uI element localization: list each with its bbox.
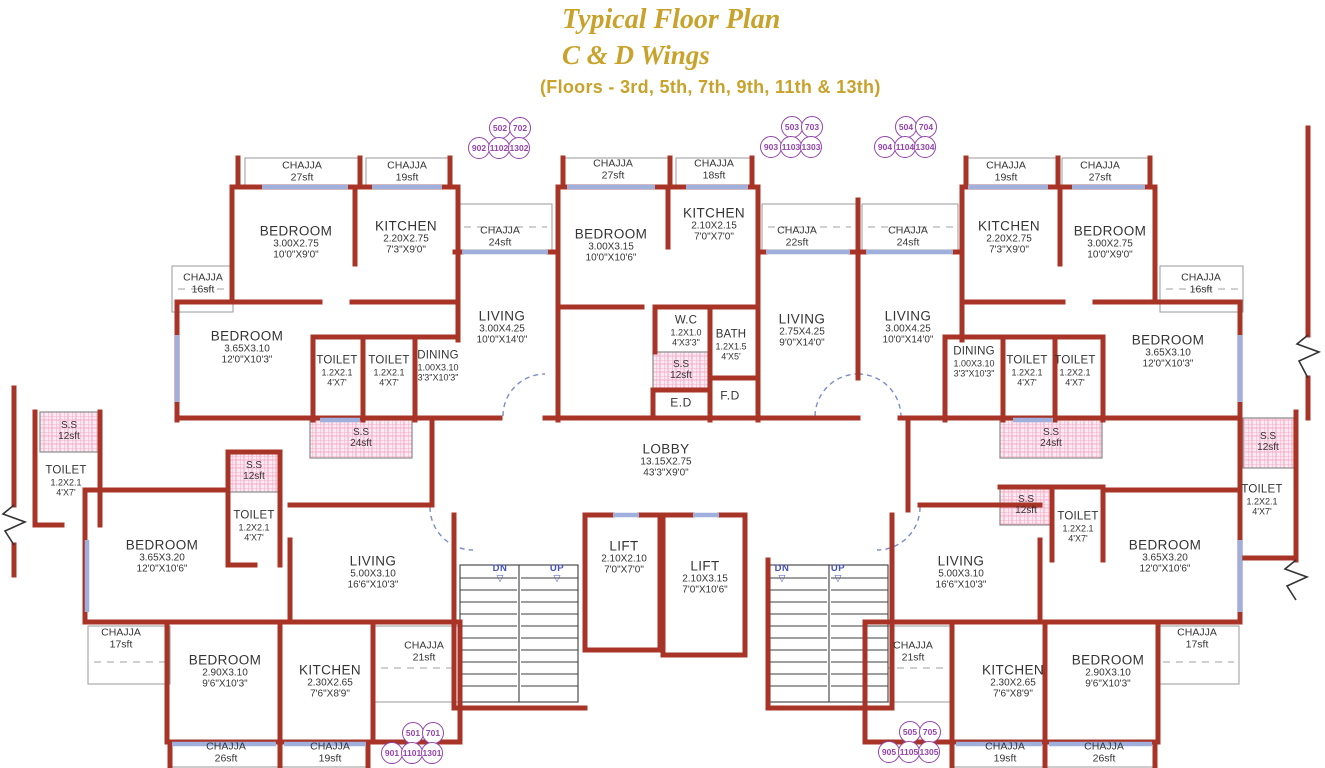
unit-number-cluster: 50470490411041304	[874, 117, 936, 157]
unit-number-circle: 704	[915, 116, 937, 138]
unit-number-row: 504704	[896, 117, 936, 137]
unit-number-circle: 902	[468, 137, 490, 159]
unit-number-cluster: 50270290211021302	[468, 118, 530, 158]
unit-number-circle: 705	[919, 721, 941, 743]
unit-number-circle: 1303	[800, 136, 822, 158]
unit-number-circle: 702	[509, 117, 531, 139]
unit-number-circle: 703	[801, 116, 823, 138]
floor-plan-drawing	[0, 0, 1325, 768]
unit-number-cluster: 50170190111011301	[381, 723, 443, 763]
unit-number-cluster: 50570590511051305	[878, 722, 940, 762]
walls	[14, 128, 1308, 767]
unit-number-row: 90211021302	[469, 138, 529, 158]
stairs	[460, 565, 888, 702]
unit-number-circle: 505	[899, 721, 921, 743]
unit-number-circle: 1305	[918, 741, 940, 763]
unit-number-row: 505705	[900, 722, 940, 742]
unit-number-circle: 501	[402, 722, 424, 744]
door-arcs	[430, 374, 920, 550]
unit-number-circle: 504	[895, 116, 917, 138]
unit-number-circle: 904	[874, 136, 896, 158]
unit-number-row: 90311031303	[761, 137, 821, 157]
unit-number-row: 90411041304	[875, 137, 935, 157]
unit-number-row: 502702	[490, 118, 530, 138]
unit-number-circle: 701	[422, 722, 444, 744]
unit-number-row: 90511051305	[879, 742, 939, 762]
unit-number-circle: 1102	[488, 137, 510, 159]
unit-number-circle: 1103	[780, 136, 802, 158]
unit-number-circle: 1104	[894, 136, 916, 158]
page-title: Typical Floor Plan	[562, 4, 960, 36]
title-block: Typical Floor Plan C & D Wings (Floors -…	[540, 4, 960, 98]
unit-number-row: 501701	[403, 723, 443, 743]
unit-number-circle: 903	[760, 136, 782, 158]
unit-number-circle: 901	[381, 742, 403, 764]
unit-number-row: 503703	[782, 117, 822, 137]
unit-number-circle: 1301	[421, 742, 443, 764]
unit-number-circle: 905	[878, 741, 900, 763]
floors-subtitle: (Floors - 3rd, 5th, 7th, 9th, 11th & 13t…	[540, 77, 960, 98]
unit-number-cluster: 50370390311031303	[760, 117, 822, 157]
unit-number-row: 90111011301	[382, 743, 442, 763]
wing-subtitle: C & D Wings	[562, 40, 960, 71]
unit-number-circle: 502	[489, 117, 511, 139]
unit-number-circle: 1304	[914, 136, 936, 158]
unit-number-circle: 1105	[898, 741, 920, 763]
unit-number-circle: 1101	[401, 742, 423, 764]
unit-number-circle: 503	[781, 116, 803, 138]
floor-plan-page: Typical Floor Plan C & D Wings (Floors -…	[0, 0, 1325, 768]
unit-number-circle: 1302	[508, 137, 530, 159]
